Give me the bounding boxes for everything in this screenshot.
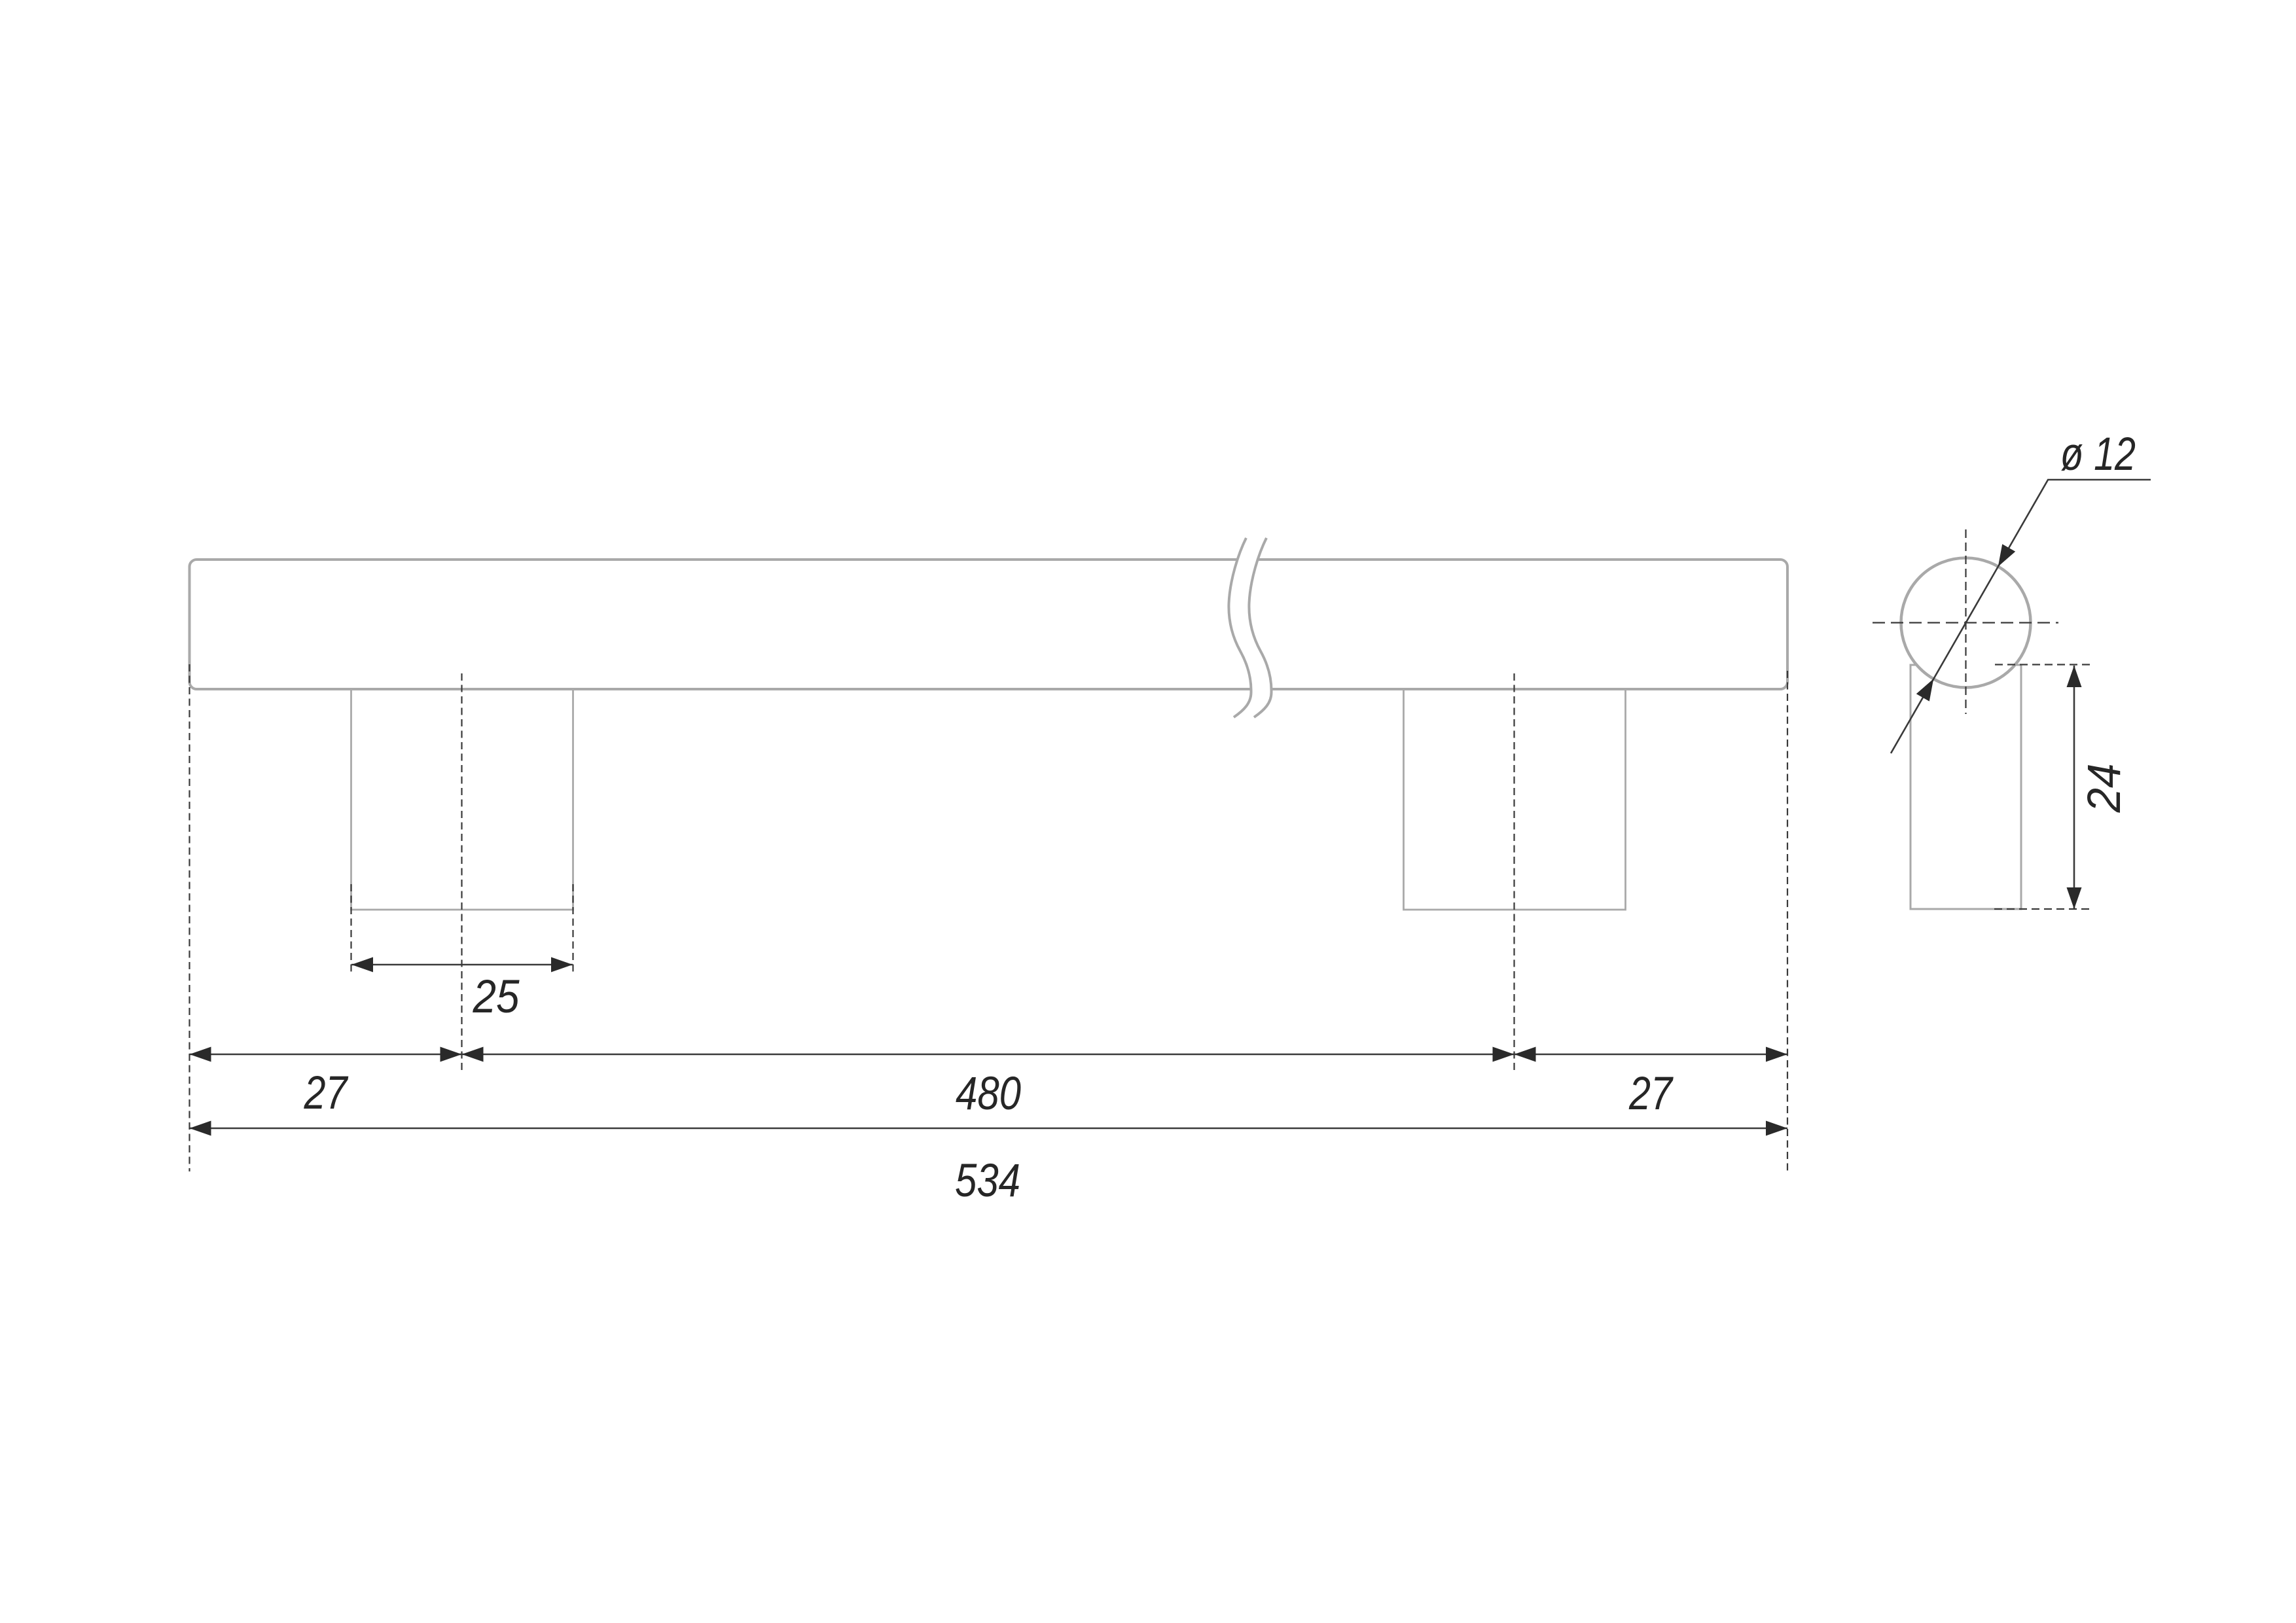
svg-text:24: 24 xyxy=(2079,764,2130,813)
svg-text:ø 12: ø 12 xyxy=(2060,429,2136,480)
svg-text:480: 480 xyxy=(956,1068,1021,1120)
svg-text:534: 534 xyxy=(955,1155,1020,1207)
svg-text:27: 27 xyxy=(304,1067,349,1119)
svg-text:27: 27 xyxy=(1628,1068,1674,1120)
svg-text:25: 25 xyxy=(473,971,520,1023)
